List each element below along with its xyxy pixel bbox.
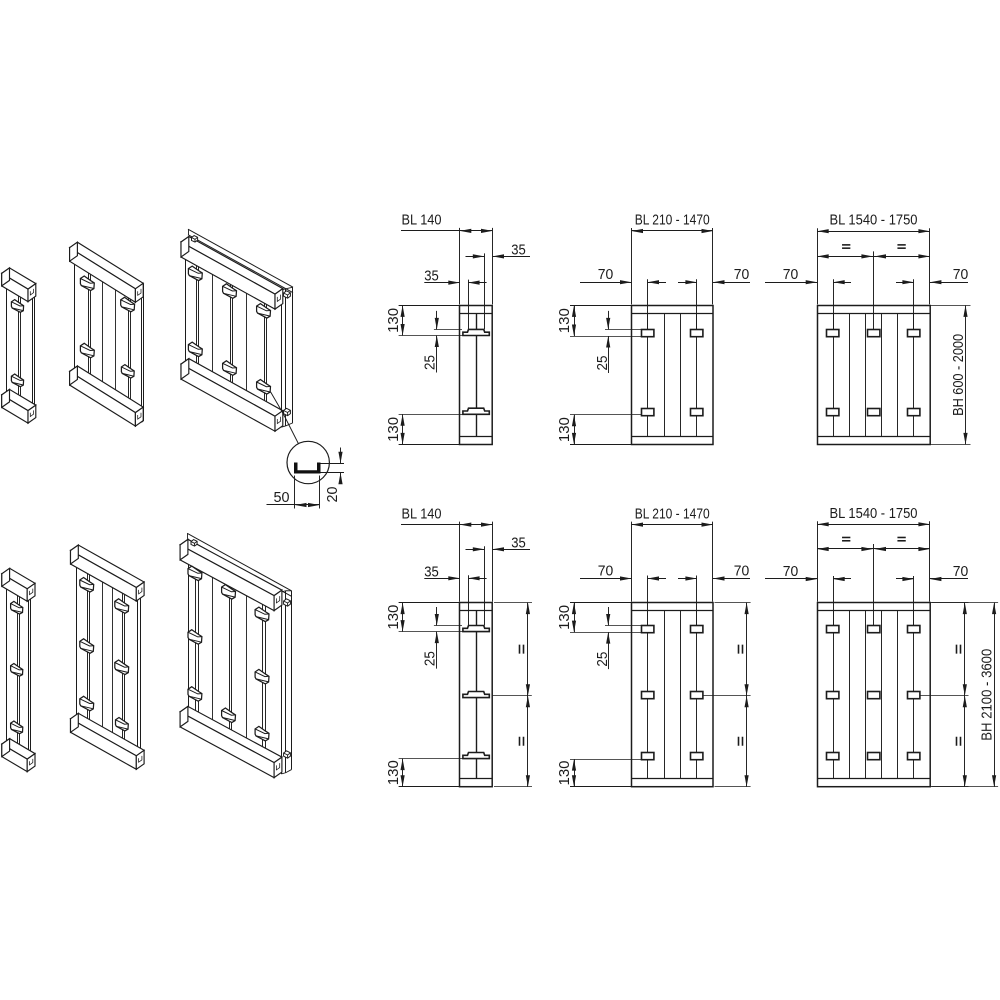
- svg-text:25: 25: [594, 356, 611, 371]
- svg-text:130: 130: [385, 605, 402, 630]
- svg-text:130: 130: [385, 308, 402, 333]
- svg-text:BH 600 - 2000: BH 600 - 2000: [950, 334, 967, 416]
- svg-text:70: 70: [783, 563, 799, 580]
- svg-text:70: 70: [953, 266, 969, 283]
- svg-text:70: 70: [953, 563, 969, 580]
- svg-text:BL 140: BL 140: [402, 506, 442, 523]
- svg-text:BH 2100 - 3600: BH 2100 - 3600: [978, 649, 995, 741]
- svg-text:BL 1540 - 1750: BL 1540 - 1750: [830, 212, 918, 229]
- svg-text:70: 70: [783, 266, 799, 283]
- svg-text:35: 35: [511, 241, 526, 258]
- svg-text:25: 25: [422, 651, 439, 666]
- svg-text:130: 130: [556, 761, 573, 786]
- svg-text:70: 70: [598, 266, 614, 283]
- svg-text:BL 210 - 1470: BL 210 - 1470: [635, 506, 710, 523]
- svg-text:BL 140: BL 140: [402, 212, 442, 229]
- svg-text:50: 50: [274, 489, 290, 506]
- svg-text:25: 25: [422, 355, 439, 370]
- svg-text:35: 35: [424, 563, 439, 580]
- svg-text:BL 210 - 1470: BL 210 - 1470: [635, 212, 710, 229]
- svg-text:130: 130: [385, 760, 402, 785]
- svg-text:BL 1540 - 1750: BL 1540 - 1750: [830, 505, 918, 522]
- svg-text:70: 70: [734, 563, 750, 580]
- svg-text:70: 70: [734, 266, 750, 283]
- svg-text:70: 70: [598, 563, 614, 580]
- svg-text:130: 130: [556, 605, 573, 630]
- svg-text:130: 130: [556, 417, 573, 442]
- svg-text:20: 20: [324, 487, 341, 503]
- svg-text:130: 130: [385, 417, 402, 442]
- svg-text:25: 25: [594, 652, 611, 667]
- svg-text:130: 130: [556, 308, 573, 333]
- svg-text:35: 35: [511, 534, 526, 551]
